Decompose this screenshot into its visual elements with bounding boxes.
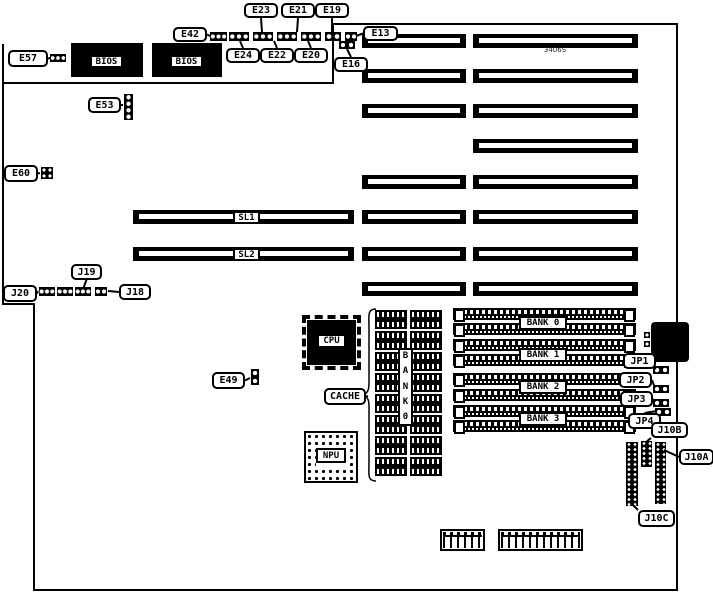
bank1-label: BANK 1 — [519, 348, 567, 362]
e57-callout: E57 — [8, 50, 48, 67]
bank0-label: BANK 0 — [519, 316, 567, 330]
sl2-label: SL2 — [233, 248, 260, 261]
j10a-callout: J10A — [679, 449, 713, 465]
jp3-callout: JP3 — [620, 391, 653, 407]
jp1-callout: JP1 — [623, 353, 656, 369]
cache-bank-label-char: N — [403, 383, 408, 392]
e42-callout: E42 — [173, 27, 207, 42]
part-number: 3406S — [530, 45, 580, 54]
e60-callout: E60 — [4, 165, 38, 182]
e24-callout: E24 — [226, 48, 260, 63]
bank2-label: BANK 2 — [519, 380, 567, 394]
sl1-label: SL1 — [233, 211, 260, 224]
j10c-callout: J10C — [638, 510, 675, 527]
e19-callout: E19 — [315, 3, 349, 18]
e53-callout: E53 — [88, 97, 121, 113]
e21-callout: E21 — [281, 3, 315, 18]
bank3-label: BANK 3 — [519, 412, 567, 426]
cache-callout: CACHE — [324, 388, 366, 405]
j19-callout: J19 — [71, 264, 102, 280]
jp2-callout: JP2 — [619, 372, 652, 388]
e16-callout: E16 — [334, 57, 368, 72]
npu-socket-label: NPU — [316, 448, 346, 463]
cache-bank-label-char: A — [403, 367, 408, 376]
e22-callout: E22 — [260, 48, 294, 63]
cache-bank-label-char: 0 — [403, 413, 408, 422]
cache-bank-label-char: K — [403, 398, 408, 407]
bios-chip-1-label: BIOS — [90, 55, 123, 68]
e23-callout: E23 — [244, 3, 278, 18]
j10b-callout: J10B — [651, 422, 688, 438]
e20-callout: E20 — [294, 48, 328, 63]
bios-chip-2-label: BIOS — [170, 55, 203, 68]
callout-labels-layer: BIOSBIOSCPUNPUSL1SL2BANK 0BANK 1BANK 2BA… — [0, 0, 713, 599]
j18-callout: J18 — [119, 284, 151, 300]
cache-bank-label: BANK0 — [398, 348, 413, 426]
e49-callout: E49 — [212, 372, 245, 389]
motherboard-diagram: BIOSBIOSCPUNPUSL1SL2BANK 0BANK 1BANK 2BA… — [0, 0, 713, 599]
cpu-chip-label: CPU — [317, 334, 346, 348]
e13-callout: E13 — [363, 26, 398, 41]
j20-callout: J20 — [3, 285, 37, 302]
cache-bank-label-char: B — [403, 352, 408, 361]
